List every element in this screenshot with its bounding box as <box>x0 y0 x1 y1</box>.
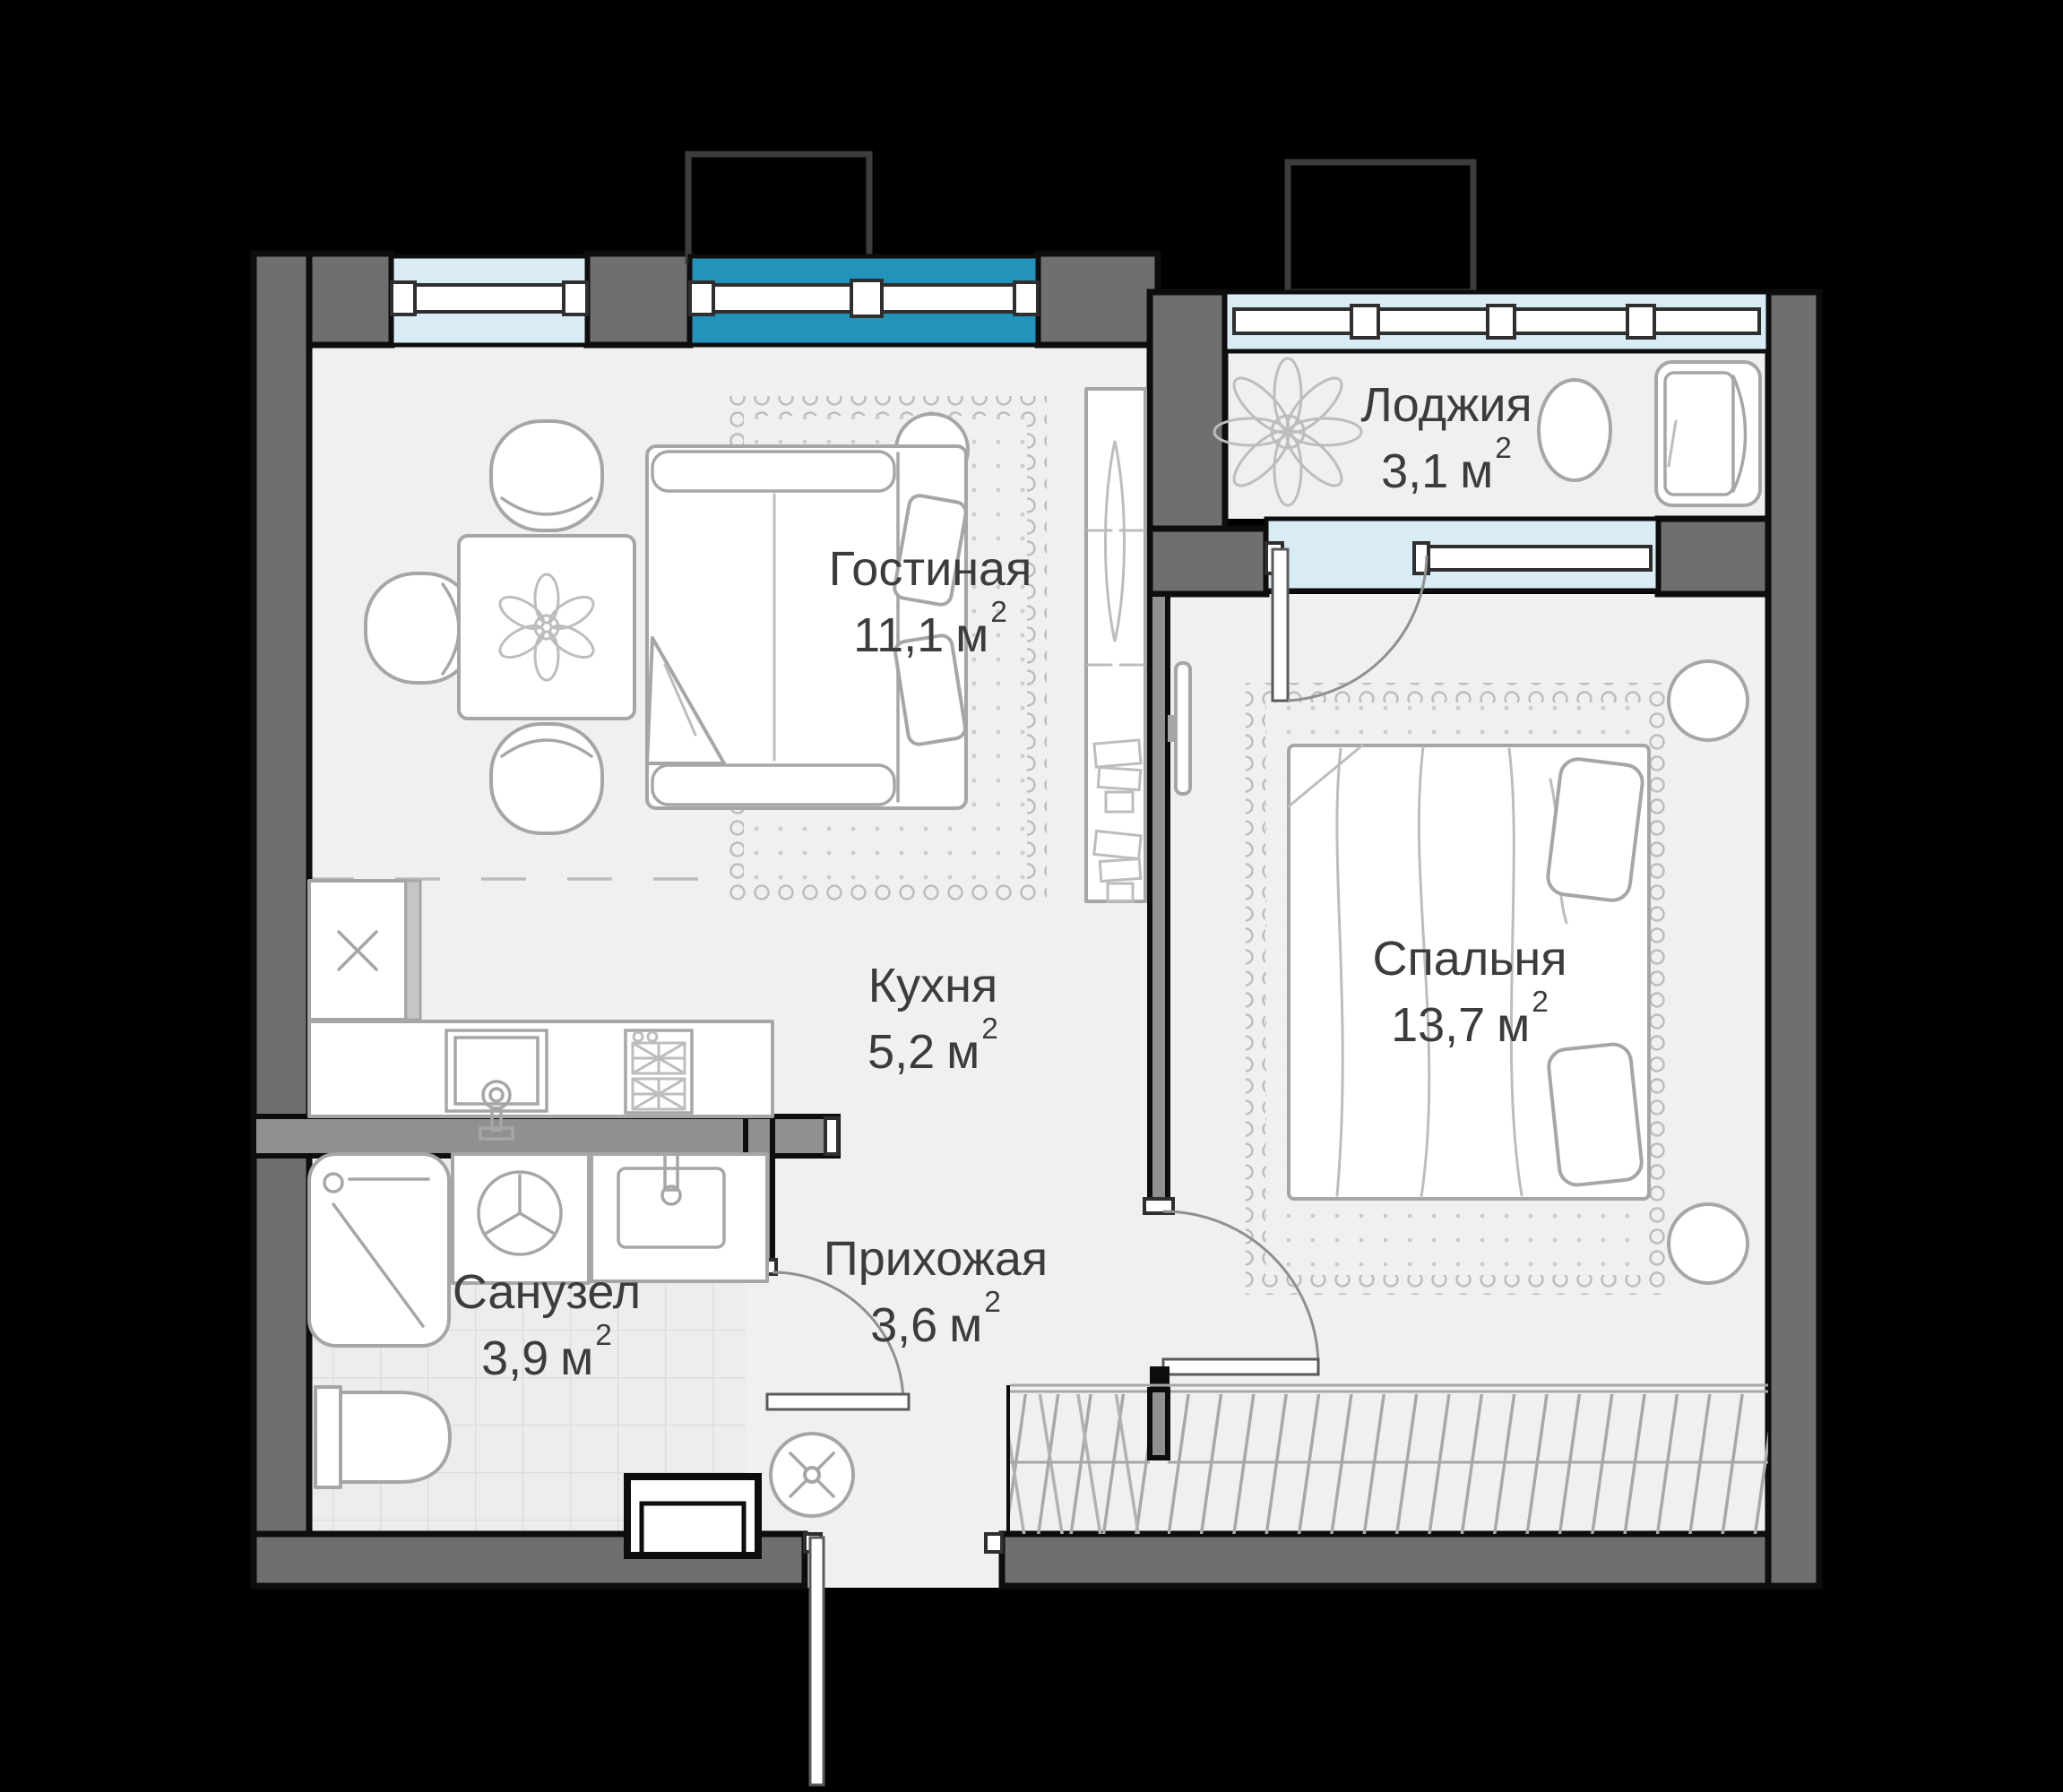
wall-bottom-right <box>1002 1534 1819 1586</box>
wall-partition-bedroom <box>1150 594 1168 1205</box>
floor-plan: Гостиная 11,1м2 Лоджия 3,1м2 Кухня 5,2м2… <box>0 0 2063 1792</box>
kitchen-counter <box>309 1021 773 1116</box>
wardrobe <box>1008 1385 1768 1534</box>
sofa <box>647 446 968 808</box>
shaft <box>627 1477 758 1555</box>
dining-table <box>459 536 634 719</box>
window-mullion <box>851 280 882 316</box>
armchair <box>1656 362 1760 505</box>
wardrobe-section-right <box>1168 1394 1768 1534</box>
wall-top-b <box>587 254 690 345</box>
vent-fan-icon <box>771 1434 853 1516</box>
entrance-jamb <box>986 1534 1002 1552</box>
window-cap <box>564 282 587 314</box>
nightstand <box>1669 1204 1748 1283</box>
tv <box>1176 663 1190 794</box>
balcony-door-leaf <box>1273 549 1288 701</box>
wall-top-c <box>1038 254 1158 345</box>
wall-bathroom-top-cap <box>825 1118 838 1154</box>
window-mullion <box>1627 306 1654 338</box>
window-cap <box>1014 282 1038 314</box>
toilet <box>315 1387 450 1487</box>
floor-plan-drawing <box>0 0 2063 1792</box>
shelving-unit <box>1086 389 1145 901</box>
window-mullion <box>1488 306 1515 338</box>
window-cap <box>690 282 713 314</box>
bed <box>1289 745 1649 1199</box>
wall-right <box>1768 292 1819 1586</box>
wall-loggia-left-step <box>1150 529 1266 594</box>
tall-cabinet <box>406 881 420 1020</box>
wall-loggia-left <box>1150 292 1225 529</box>
bathroom-sink <box>591 1154 767 1281</box>
window-bedroom-sill <box>1427 547 1651 570</box>
floor-entrance-gap <box>805 1534 1002 1588</box>
pillow <box>1546 757 1644 902</box>
bedroom-door-leaf <box>1163 1359 1318 1374</box>
stool <box>1539 380 1610 480</box>
tv-mount <box>1168 715 1177 742</box>
wall-loggia-bedroom <box>1658 519 1768 594</box>
wardrobe-divider <box>1150 1390 1168 1458</box>
pillow <box>1547 1043 1643 1187</box>
window-mullion <box>1351 306 1378 338</box>
window-living-left-sill <box>399 285 573 312</box>
washing-machine <box>453 1154 589 1283</box>
window-cap <box>392 282 415 314</box>
balcony-outline-loggia <box>1288 162 1473 292</box>
shower <box>309 1154 449 1346</box>
balcony-outline-top <box>688 154 869 262</box>
bathroom-door-leaf <box>767 1394 909 1409</box>
entrance-door-leaf <box>810 1538 824 1785</box>
wall-left <box>254 254 309 1586</box>
nightstand <box>1669 661 1748 740</box>
